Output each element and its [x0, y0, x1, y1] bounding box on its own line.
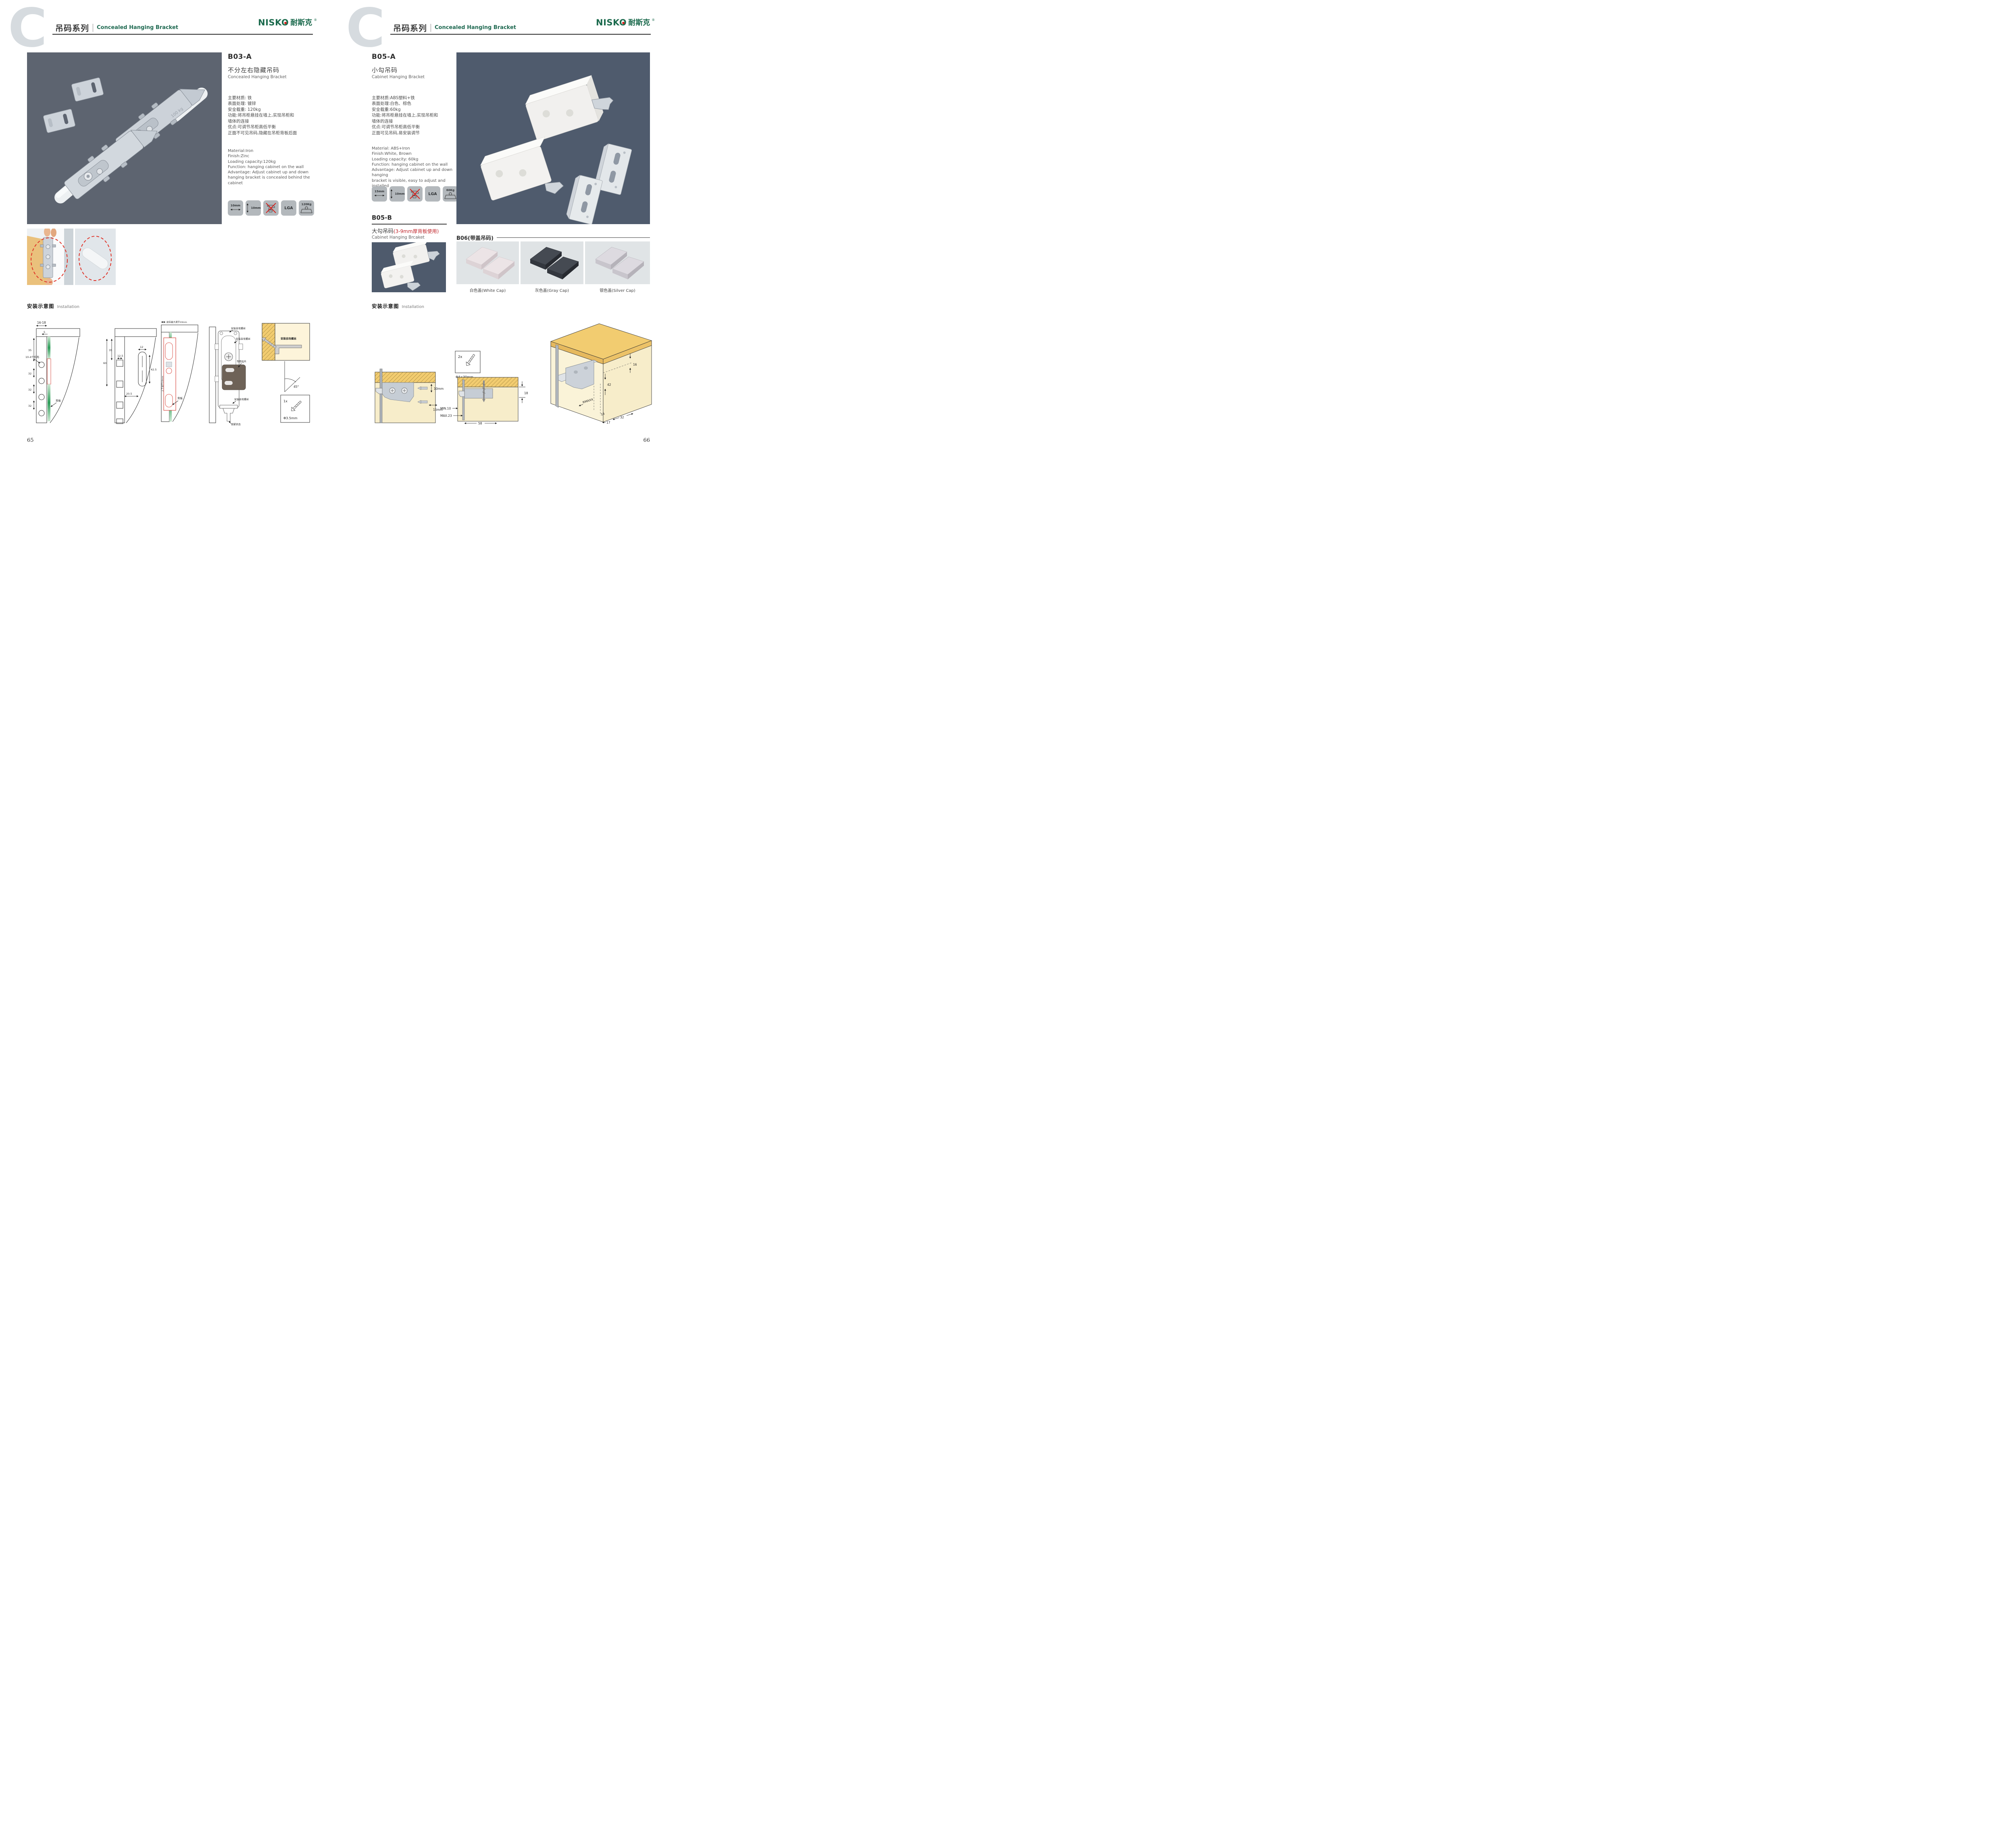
series-title-en: Concealed Hanging Bracket: [435, 25, 516, 31]
screw-size: Φ3.5mm: [283, 416, 298, 420]
b03a-install-photo: [27, 229, 73, 285]
b05a-code: B05-A: [372, 53, 396, 61]
dim-label: MAX.23: [440, 414, 452, 418]
series-title-cn: 吊码系列: [55, 22, 89, 33]
b05b-product-photo: [372, 242, 446, 292]
dim-label: MIN.10: [440, 407, 451, 410]
icon-label: 60Kg: [446, 189, 454, 192]
spec-line: 正面可见吊码,易安装调节: [372, 130, 456, 136]
installation-title-cn: 安装示意图: [372, 302, 399, 310]
icon-label: 120Kg: [301, 203, 311, 206]
lga-cert-icon: LGA: [425, 186, 440, 202]
registered-mark: ®: [314, 19, 317, 22]
install-diagram-section-2: 18 MIN.10 MAX.23 58: [439, 374, 544, 426]
series-watermark-letter: C: [8, 2, 47, 55]
b03a-spec-icons: 10mm 10mm LGA 120Kg: [228, 200, 314, 216]
b03a-cover-photo: [75, 229, 116, 285]
b03a-name-en: Concealed Hanging Bracket: [228, 75, 287, 79]
spec-line: 墙体的连接: [372, 119, 456, 124]
b05b-name: 大勾吊码(3-9mm厚背板使用): [372, 227, 439, 235]
install-diagram-3d: 16 42 RMAX4 16 17 32: [548, 320, 656, 427]
dim-label: 32: [28, 372, 31, 375]
page-header-left: 吊码系列 Concealed Hanging Bracket: [55, 22, 178, 33]
spec-line: Advantage: Adjust cabinet up and down ha…: [372, 167, 458, 178]
b05b-note: (3-9mm厚背板使用): [394, 229, 439, 234]
b05a-product-photo: [456, 52, 650, 224]
b06-title: B06(带盖吊码): [456, 234, 494, 241]
part-label: 专用挂片: [237, 360, 246, 363]
dim-label: 32: [28, 388, 31, 391]
b05a-specs-cn: 主要材质:ABS塑料+铁 表面处理:白色、棕色 安全载重:60kg 功能:将吊柜…: [372, 95, 456, 136]
header-rule: [390, 34, 651, 35]
screw-label: 安装自攻螺丝: [281, 337, 297, 340]
b06-cap-label: 灰色盖(Gray Cap): [521, 287, 583, 293]
panel-height-icon: 10mm: [246, 200, 261, 216]
spec-line: 优点:可调节吊柜高低平衡: [372, 124, 456, 130]
brand-logo-cn: 耐斯克: [628, 19, 650, 27]
lga-cert-icon: LGA: [281, 200, 296, 216]
installation-title-cn: 安装示意图: [27, 302, 54, 310]
header-rule: [52, 34, 313, 35]
installation-title-en: Installation: [57, 305, 79, 309]
no-drill-icon: [263, 200, 279, 216]
screw-qty: 2x: [458, 355, 462, 359]
dim-label: 20.5: [126, 392, 132, 395]
screw-label: 安装自攻螺丝: [236, 337, 250, 341]
header-divider: [93, 24, 93, 32]
icon-label: 10mm: [251, 207, 260, 210]
install-diagram-section-1: 10mm 15mm: [374, 365, 445, 425]
spec-line: Material:Iron: [228, 148, 316, 154]
b03a-product-photo: 100 kg: [27, 52, 222, 224]
dim-label: 42.5: [151, 368, 156, 371]
load-capacity-icon: 60Kg: [443, 186, 458, 202]
dim-label: 32: [28, 404, 31, 408]
panel-width-icon: 15mm: [372, 186, 387, 202]
dim-label: 12.5: [117, 354, 123, 358]
dim-label: 32: [620, 416, 624, 419]
install-diagram-side-holes: 16-18 5 35 32 32 32 10-4个均布 背板: [25, 320, 81, 427]
spec-line: Function: hanging cabinet on the wall: [228, 164, 316, 170]
page-number-left: 65: [27, 437, 34, 443]
icon-label: 10mm: [395, 193, 404, 196]
install-diagram-screw-detail: 安装自攻螺丝 45° 1x Φ3.5mm: [261, 322, 313, 428]
spec-line: 墙体的连接: [228, 119, 316, 124]
spec-line: 主要材质: 铁: [228, 95, 316, 101]
install-diagram-adjustment: 前后最大调节10mm 上下调节10mm 背板: [160, 318, 200, 427]
install-diagram-side-slots: 60 35 12.5 12 42.5 20.5: [103, 320, 157, 427]
lock-label: 锁紧状态: [231, 423, 241, 426]
registered-mark: ®: [652, 19, 655, 22]
dim-label: 35: [28, 349, 31, 352]
spec-line: hanging bracket is concealed behind the …: [228, 175, 316, 186]
dim-label: 16: [633, 363, 637, 366]
page-number-right: 66: [621, 437, 650, 443]
spec-line: 安全载重: 120kg: [228, 107, 316, 112]
angle-label: 45°: [294, 385, 299, 389]
brand-logo-en: NISKO: [258, 19, 289, 27]
spec-line: 表面处理:白色、棕色: [372, 101, 456, 106]
spec-line: Advantage: Adjust cabinet up and down: [228, 170, 316, 175]
icon-label: 10mm: [231, 204, 240, 207]
b05b-rule: [372, 224, 447, 225]
b06-cap-label: 银色盖(Silver Cap): [585, 287, 650, 293]
spec-line: 表面处理: 镀锌: [228, 101, 316, 106]
load-capacity-icon: 120Kg: [299, 200, 314, 216]
icon-label: LGA: [428, 192, 437, 196]
series-title-en: Concealed Hanging Bracket: [97, 25, 178, 31]
installation-header-right: 安装示意图 Installation: [372, 302, 424, 310]
install-diagram-bracket-front: 安装自攻螺丝 安装自攻螺丝 专用挂片 安装自攻螺丝 锁紧状态: [208, 320, 253, 427]
no-drill-icon: [407, 186, 423, 202]
spec-line: Finish:White, Brown: [372, 151, 458, 156]
screw-label: 安装自攻螺丝: [234, 398, 249, 401]
b05a-name-en: Cabinet Hanging Bracket: [372, 75, 425, 79]
b03a-code: B03-A: [228, 53, 252, 61]
spec-line: 功能:将吊柜悬挂在墙上,实现吊柜和: [228, 112, 316, 118]
adjust-label: 上下调节10mm: [161, 376, 164, 392]
spec-line: Finish:Zinc: [228, 154, 316, 159]
b05b-name-cn: 大勾吊码: [372, 228, 394, 235]
header-divider: [431, 24, 431, 32]
spec-line: 功能:将吊柜悬挂在墙上,实现吊柜和: [372, 112, 456, 118]
icon-label: 15mm: [375, 190, 384, 193]
b06-white-cap-photo: [456, 241, 519, 284]
b05b-code: B05-B: [372, 214, 392, 221]
b05a-name-cn: 小勾吊码: [372, 66, 398, 74]
dim-label: 16-18: [37, 321, 46, 324]
installation-header-left: 安装示意图 Installation: [27, 302, 79, 310]
callout-label: 10-4个均布: [25, 355, 40, 359]
b06-header: B06(带盖吊码): [456, 234, 650, 241]
spec-line: 安全载重:60kg: [372, 107, 456, 112]
backboard-label: 背板: [56, 399, 61, 402]
brand-logo: NISKO 耐斯克 ®: [596, 19, 655, 27]
icon-label: LGA: [284, 206, 293, 210]
spec-line: Loading capacity:120kg: [228, 159, 316, 164]
backboard-label: 背板: [177, 396, 183, 400]
installation-title-en: Installation: [402, 305, 424, 309]
dim-label: 42: [607, 383, 611, 387]
screw-label: 安装自攻螺丝: [231, 327, 246, 330]
series-title-cn: 吊码系列: [393, 22, 427, 33]
dim-label: 60: [103, 362, 106, 365]
spec-line: Material: ABS+Iron: [372, 146, 458, 151]
panel-width-icon: 10mm: [228, 200, 243, 216]
b05a-spec-icons: 15mm 10mm LGA 60Kg: [372, 186, 458, 202]
page-header-right: 吊码系列 Concealed Hanging Bracket: [393, 22, 516, 33]
spec-line: 正面不可见吊码,隐藏在吊柜背板后面: [228, 130, 316, 136]
b03a-specs-cn: 主要材质: 铁 表面处理: 镀锌 安全载重: 120kg 功能:将吊柜悬挂在墙上…: [228, 95, 316, 136]
b03a-name-cn: 不分左右隐藏吊码: [228, 66, 279, 74]
b06-silver-cap-photo: [585, 241, 650, 284]
dim-label: 58: [478, 422, 482, 425]
b03a-specs-en: Material:Iron Finish:Zinc Loading capaci…: [228, 148, 316, 186]
dim-label: 17: [606, 421, 610, 424]
spec-line: 优点:可调节吊柜高低平衡: [228, 124, 316, 130]
b06-cap-label: 白色盖(White Cap): [456, 287, 519, 293]
screw-qty: 1x: [283, 399, 287, 403]
brand-logo-en: NISKO: [596, 19, 627, 27]
spec-line: Function: hanging cabinet on the wall: [372, 162, 458, 167]
adjust-label: 前后最大调节10mm: [167, 320, 187, 324]
dim-label: 35: [109, 349, 112, 352]
panel-height-icon: 10mm: [389, 186, 405, 202]
brand-logo: NISKO 耐斯克 ®: [258, 19, 317, 27]
dim-label: 18: [524, 391, 528, 395]
b06-gray-cap-photo: [521, 241, 583, 284]
dim-label: 5: [44, 331, 45, 334]
brand-logo-cn: 耐斯克: [290, 19, 312, 27]
spec-line: Loading capacity: 60kg: [372, 157, 458, 162]
b05b-name-en: Cabinet Hanging Brcaket: [372, 235, 425, 240]
catalog-spread: C 吊码系列 Concealed Hanging Bracket NISKO 耐…: [0, 0, 676, 462]
b06-rule: [497, 237, 650, 238]
series-watermark-letter: C: [346, 2, 385, 55]
spec-line: 主要材质:ABS塑料+铁: [372, 95, 456, 101]
dim-label: 12: [140, 345, 143, 349]
b05a-specs-en: Material: ABS+Iron Finish:White, Brown L…: [372, 146, 458, 189]
